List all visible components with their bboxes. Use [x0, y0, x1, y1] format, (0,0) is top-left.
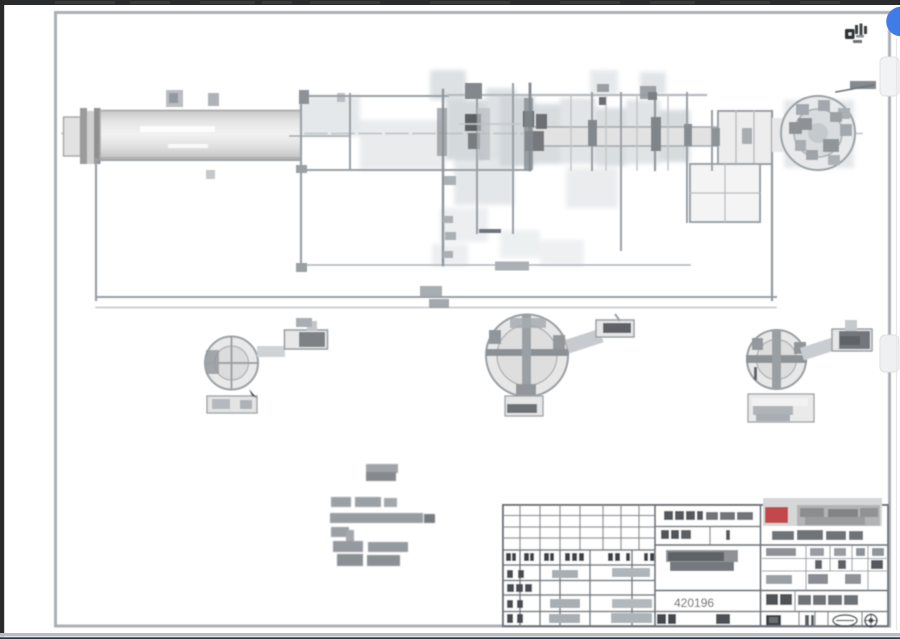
svg-text:420196: 420196: [674, 596, 714, 610]
